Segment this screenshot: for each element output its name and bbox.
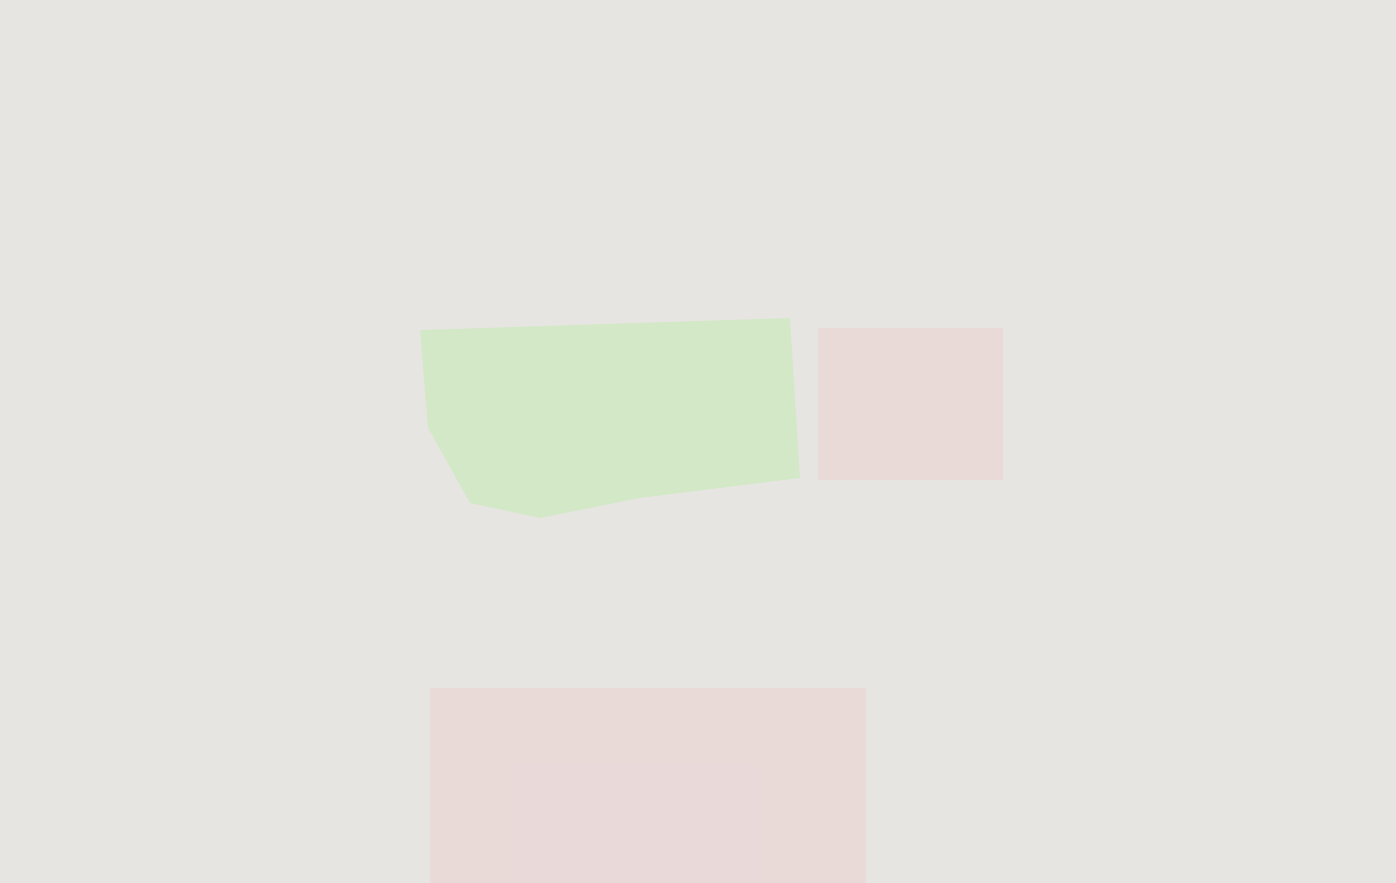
map-viewport[interactable] bbox=[0, 0, 1396, 883]
map-canvas[interactable] bbox=[0, 0, 1396, 883]
